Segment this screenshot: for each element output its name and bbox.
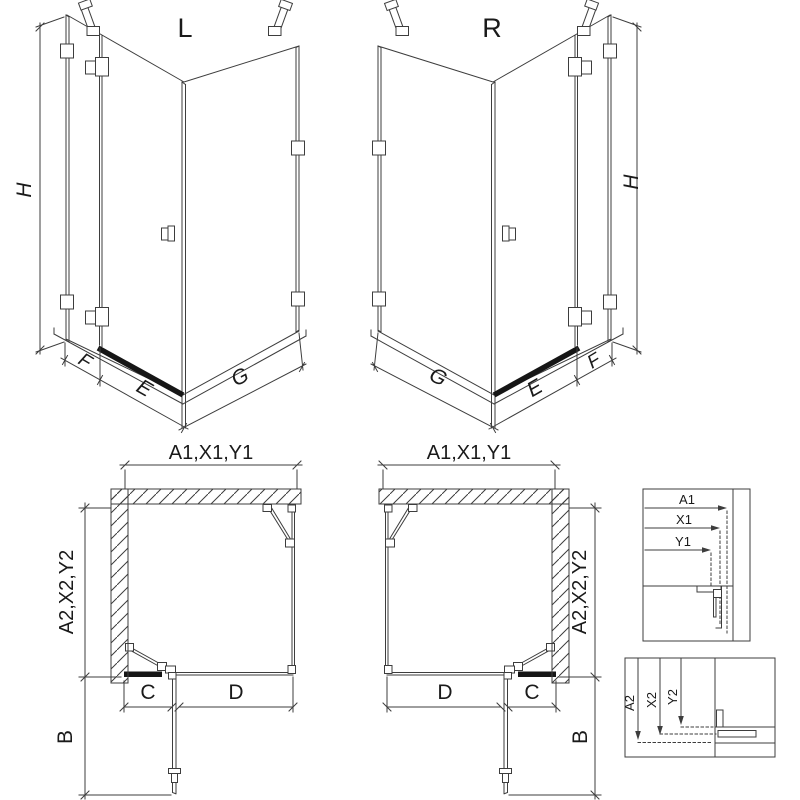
- detail-label-a2: A2: [622, 695, 637, 711]
- dim-label-height-left: H: [13, 182, 36, 198]
- detail-profile-lines: [715, 658, 775, 757]
- view-title-left: L: [177, 13, 192, 43]
- dim-label-d-right: D: [437, 681, 452, 704]
- detail-label-y1: Y1: [675, 534, 691, 549]
- door-glass-section: [718, 731, 756, 738]
- wall-hatch-side: [552, 489, 569, 683]
- dim-label-f-right: F: [584, 349, 606, 374]
- iso-view-right: R H F E G: [371, 0, 643, 433]
- detail-box-depth: A2 X2 Y2: [622, 658, 775, 757]
- diagram-canvas: L H F E G R H F E G A1,X1,Y1 A2,X2,Y2 B …: [0, 0, 800, 800]
- profile-clamp: [714, 590, 722, 598]
- wall-hatch-side: [111, 489, 128, 683]
- plan-view-right: A1,X1,Y1 A2,X2,Y2 B D C: [378, 442, 601, 799]
- dim-label-b-left: B: [54, 730, 77, 744]
- shower-enclosure-dimension-drawing: L H F E G R H F E G A1,X1,Y1 A2,X2,Y2 B …: [0, 0, 800, 800]
- dim-label-a1x1y1-right: A1,X1,Y1: [427, 442, 512, 464]
- dim-label-d-left: D: [228, 681, 243, 704]
- arrowhead-a2-icon: [635, 731, 641, 740]
- dim-label-c-left: C: [140, 681, 155, 704]
- detail-projection-dashes: [638, 727, 716, 743]
- arrowhead-x1-icon: [711, 525, 720, 531]
- dim-label-c-right: C: [524, 681, 539, 704]
- detail-label-a1: A1: [679, 492, 695, 507]
- dim-label-a1x1y1-left: A1,X1,Y1: [169, 442, 254, 464]
- detail-label-x2: X2: [644, 692, 659, 708]
- wall-hatch-top: [379, 489, 569, 504]
- arrowhead-y2-icon: [678, 716, 684, 725]
- dim-label-height-right: H: [620, 174, 643, 190]
- view-title-right: R: [482, 13, 502, 43]
- arrowhead-y1-icon: [702, 547, 711, 553]
- dim-label-a2x2y2-left: A2,X2,Y2: [56, 550, 78, 635]
- dim-label-f-left: F: [74, 349, 96, 374]
- dim-label-a2x2y2-right: A2,X2,Y2: [569, 550, 591, 635]
- dim-label-g-right: G: [425, 363, 450, 391]
- detail-box-frame: [643, 489, 750, 641]
- dim-label-b-right: B: [569, 730, 592, 744]
- iso-view-left: L H F E G: [13, 0, 306, 433]
- detail-label-x1: X1: [676, 512, 692, 527]
- detail-label-y2: Y2: [665, 689, 680, 705]
- wall-profile-tab: [717, 710, 724, 727]
- detail-box-width: A1 X1 Y1: [643, 489, 750, 641]
- arrowhead-a1-icon: [718, 505, 727, 511]
- wall-hatch-top: [111, 489, 301, 504]
- plan-view-left: A1,X1,Y1 A2,X2,Y2 B C D: [54, 442, 302, 799]
